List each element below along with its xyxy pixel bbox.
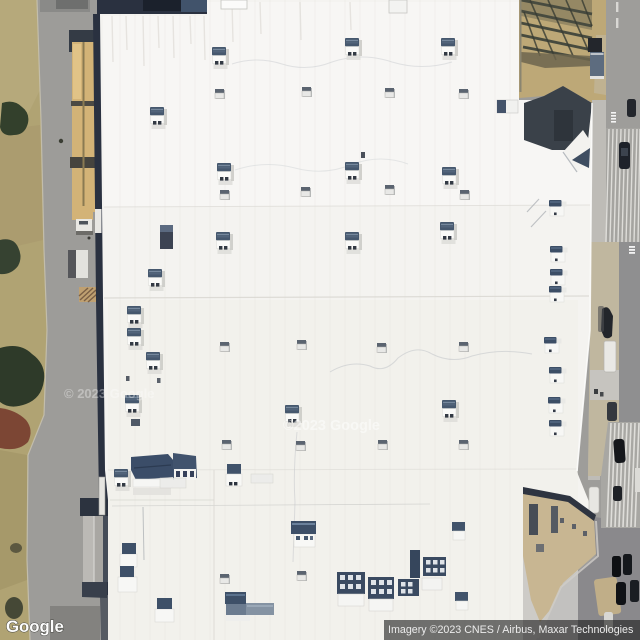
svg-text:©2023 Google: ©2023 Google [283,418,380,434]
svg-text:Imagery ©2023 CNES / Airbus, M: Imagery ©2023 CNES / Airbus, Maxar Techn… [388,624,633,636]
svg-text:© 2023 Google: © 2023 Google [64,386,155,401]
svg-text:Google: Google [6,617,64,636]
